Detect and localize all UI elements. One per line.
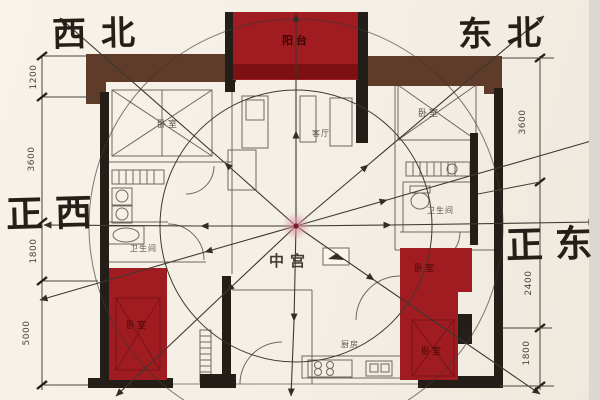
room-label-living: 客厅 bbox=[312, 128, 330, 139]
center-glow-dot bbox=[282, 212, 310, 240]
direction-label-northwest: 西北 bbox=[51, 5, 150, 56]
room-label-bedroom-se-upper: 卧室 bbox=[414, 261, 436, 274]
room-label-bedroom-sw: 卧室 bbox=[126, 318, 148, 331]
scan-edge-strip bbox=[589, 0, 600, 400]
room-label-balcony: 阳台 bbox=[282, 32, 310, 48]
center-palace-label: 中宫 bbox=[269, 250, 311, 271]
dim-right-2400: 2400 bbox=[524, 271, 534, 296]
dim-left-1200: 1200 bbox=[29, 65, 39, 90]
room-label-kitchen: 厨房 bbox=[341, 339, 359, 350]
direction-label-northeast: 东北 bbox=[457, 5, 556, 56]
room-label-bedroom-nw: 卧室 bbox=[157, 117, 179, 130]
dim-right-1800: 1800 bbox=[522, 341, 532, 366]
room-label-bedroom-se: 卧室 bbox=[421, 344, 443, 357]
room-label-bathroom-east: 卫生间 bbox=[427, 205, 454, 216]
dim-right-3600: 3600 bbox=[518, 110, 528, 135]
compass-mark-icon bbox=[323, 248, 349, 265]
fengshui-floorplan-image: 西北 东北 正西 正东 中宫 卧室 卧室 客厅 卫生间 卫生间 厨房 阳台 卧室… bbox=[0, 0, 600, 400]
room-label-bedroom-ne: 卧室 bbox=[418, 106, 440, 119]
direction-label-west: 正西 bbox=[5, 182, 104, 239]
direction-label-east: 正东 bbox=[505, 213, 600, 270]
dim-left-3600: 3600 bbox=[27, 147, 37, 172]
dim-left-5000: 5000 bbox=[22, 321, 32, 346]
dim-left-1800: 1800 bbox=[29, 239, 39, 264]
room-label-bathroom-west: 卫生间 bbox=[130, 243, 157, 254]
entry-details bbox=[186, 166, 282, 384]
